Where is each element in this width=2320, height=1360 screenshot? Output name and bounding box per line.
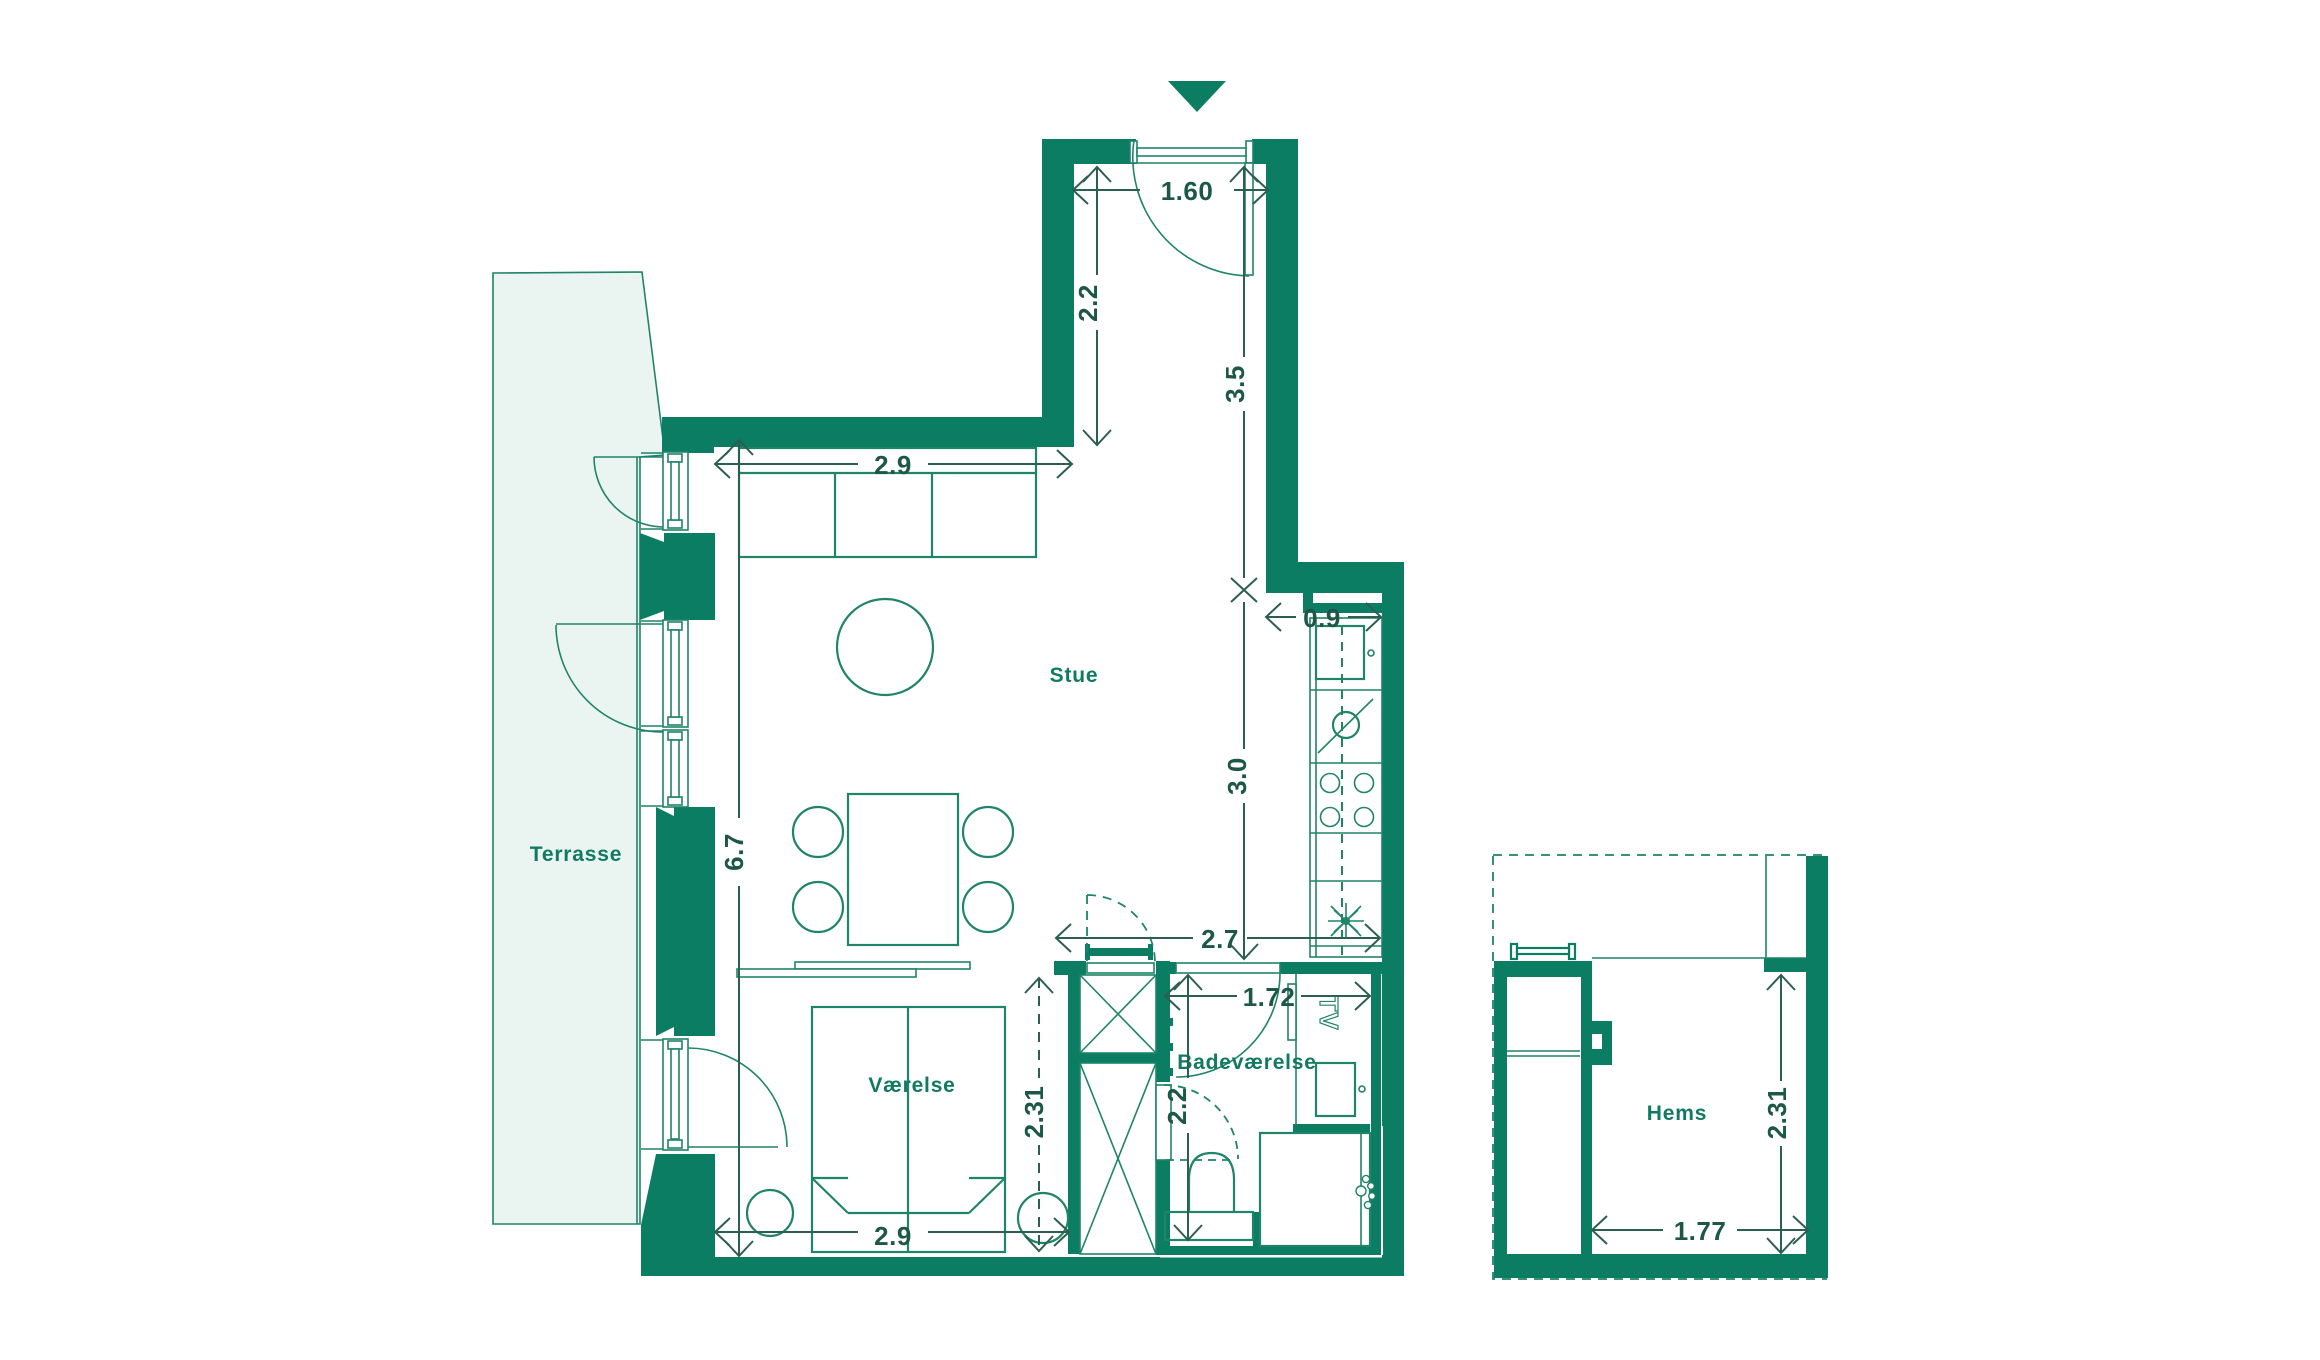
svg-text:3.0: 3.0 — [1222, 757, 1252, 795]
svg-text:Værelse: Værelse — [868, 1074, 955, 1097]
svg-text:Hems: Hems — [1647, 1102, 1707, 1125]
svg-text:TV: TV — [1314, 995, 1344, 1030]
svg-text:2.2: 2.2 — [1162, 1087, 1192, 1125]
svg-text:3.5: 3.5 — [1220, 365, 1250, 403]
svg-text:2.9: 2.9 — [874, 1221, 912, 1251]
svg-text:2.31: 2.31 — [1019, 1086, 1049, 1139]
svg-text:Terrasse: Terrasse — [530, 843, 622, 866]
svg-text:Stue: Stue — [1050, 664, 1099, 687]
svg-text:2.31: 2.31 — [1762, 1087, 1792, 1140]
svg-text:6.7: 6.7 — [719, 833, 749, 871]
svg-text:1.72: 1.72 — [1243, 982, 1296, 1012]
svg-text:2.2: 2.2 — [1073, 284, 1103, 322]
svg-text:Badeværelse: Badeværelse — [1177, 1051, 1317, 1074]
svg-text:0.9: 0.9 — [1303, 603, 1341, 633]
svg-text:1.77: 1.77 — [1674, 1216, 1727, 1246]
svg-text:2.7: 2.7 — [1201, 924, 1239, 954]
svg-text:2.9: 2.9 — [874, 450, 912, 480]
svg-text:1.60: 1.60 — [1161, 176, 1214, 206]
